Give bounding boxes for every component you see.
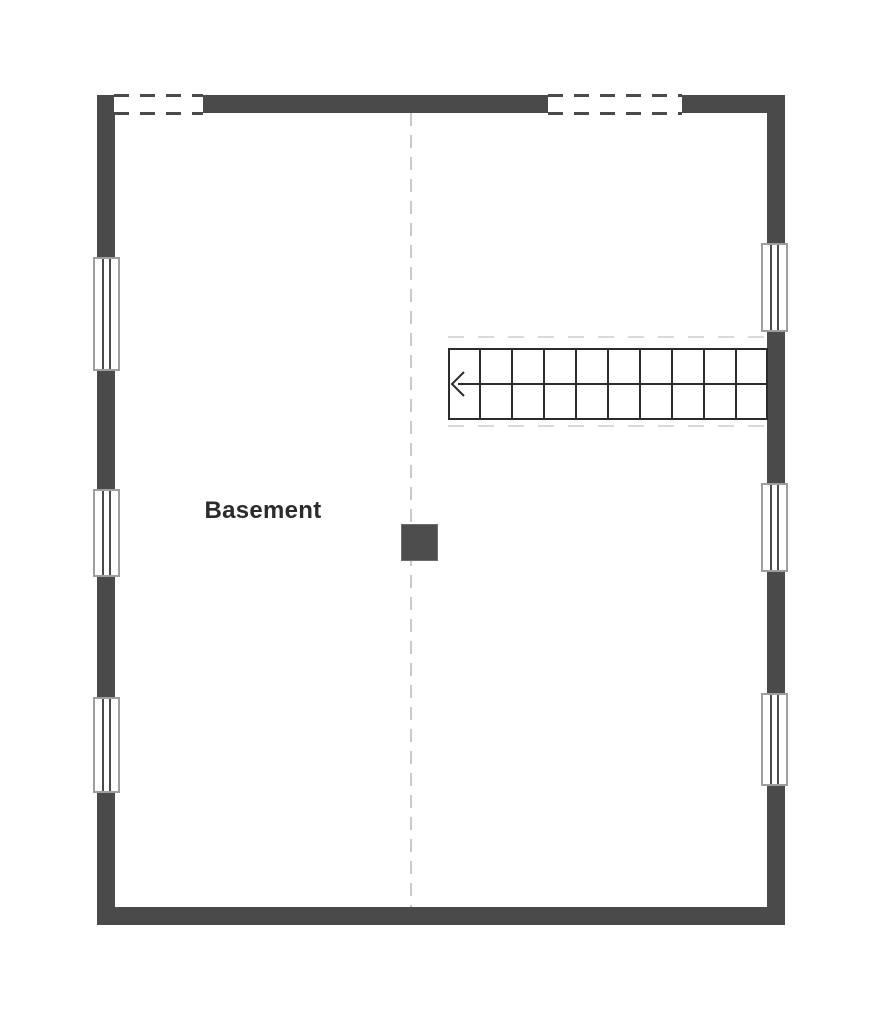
staircase xyxy=(448,348,768,420)
wall-bottom xyxy=(97,907,785,925)
window-left-2 xyxy=(93,489,120,577)
stair-faint-dash-top xyxy=(448,336,766,338)
window-left-1 xyxy=(93,257,120,371)
window-right-2 xyxy=(761,483,788,572)
stair-faint-dash-bottom xyxy=(448,425,766,427)
top-wall-opening-2 xyxy=(548,95,682,113)
floor-plan: Basement xyxy=(0,0,883,1024)
top-wall-opening-1 xyxy=(114,95,203,113)
support-column xyxy=(402,525,437,560)
window-right-1 xyxy=(761,243,788,332)
room-label: Basement xyxy=(163,497,363,525)
center-beam-dashed-line xyxy=(410,113,412,907)
window-left-3 xyxy=(93,697,120,793)
window-right-3 xyxy=(761,693,788,786)
